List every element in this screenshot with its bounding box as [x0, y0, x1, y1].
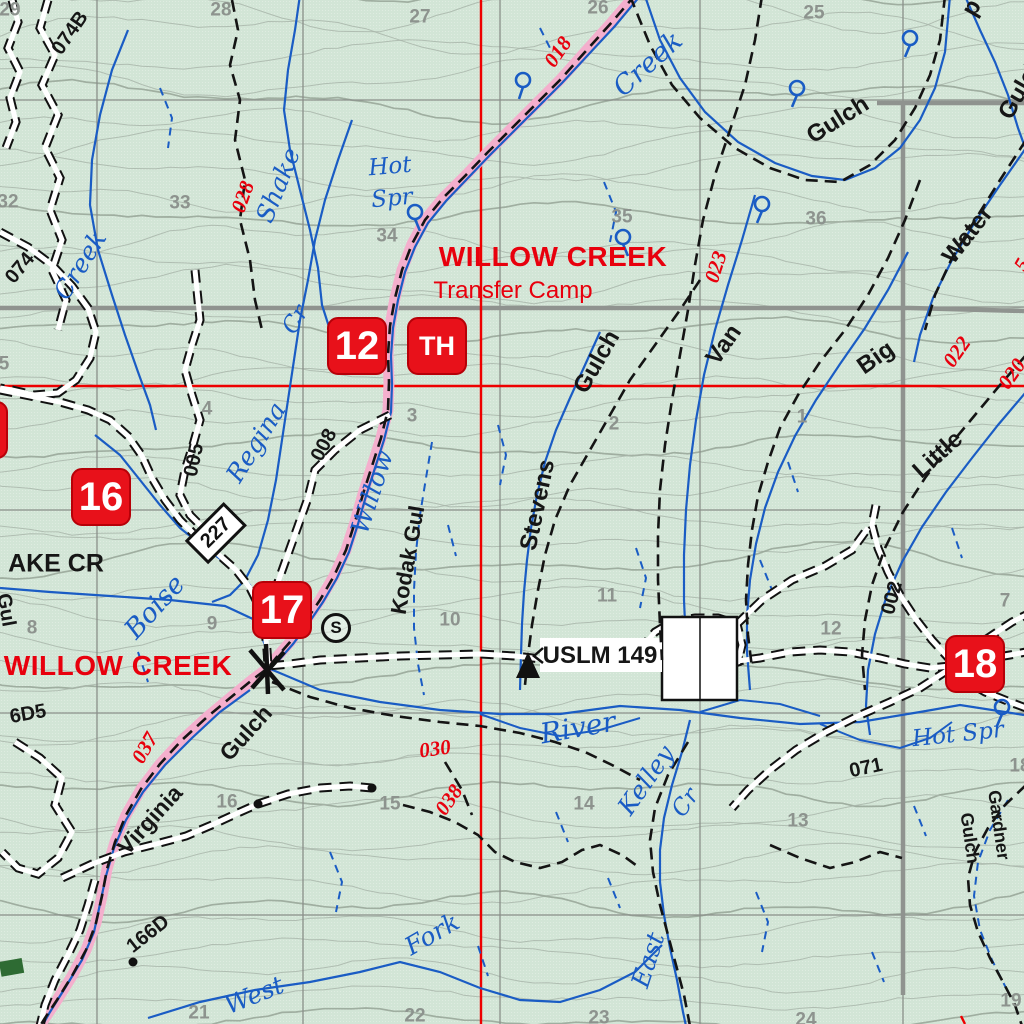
trailhead-badge-th[interactable]: TH — [407, 317, 467, 375]
label-willow-creek: WILLOW CREEK — [4, 652, 232, 680]
section-number: 29 — [0, 1, 21, 20]
route-badge-16-label: 16 — [79, 475, 124, 520]
section-number: 27 — [409, 8, 430, 27]
section-number: 21 — [188, 1004, 209, 1023]
route-badge-18-label: 18 — [953, 642, 998, 687]
section-number: 12 — [820, 620, 841, 639]
section-number: 23 — [588, 1009, 609, 1024]
label-ake-cr: AKE CR — [8, 552, 104, 577]
section-number: 1 — [797, 408, 808, 427]
section-number: 8 — [27, 619, 38, 638]
section-number: 24 — [795, 1011, 816, 1024]
label-willow-creek-camp: WILLOW CREEK — [439, 243, 667, 271]
route-badge-17[interactable]: 17 — [252, 581, 312, 639]
route-badge-12[interactable]: 12 — [327, 317, 387, 375]
section-number: 4 — [202, 400, 213, 419]
section-number: 16 — [216, 793, 237, 812]
section-number: 28 — [210, 1, 231, 20]
section-number: 3 — [407, 407, 418, 426]
route-badge-17-label: 17 — [260, 588, 305, 633]
route-badge-16[interactable]: 16 — [71, 468, 131, 526]
map-canvas — [0, 0, 1024, 1024]
label-uslm-149: USLM 149 — [543, 644, 658, 668]
section-number: 19 — [1000, 992, 1021, 1011]
trail-number-030: 030 — [418, 736, 452, 761]
label-transfer-camp: Transfer Camp — [433, 279, 592, 303]
section-number: 33 — [169, 194, 190, 213]
section-number: 36 — [805, 210, 826, 229]
section-number: 10 — [439, 611, 460, 630]
snow-area-symbol: S — [321, 613, 351, 643]
topo-map[interactable]: WILLOW CREEK Transfer Camp WILLOW CREEK … — [0, 0, 1024, 1024]
trailhead-badge-th-label: TH — [419, 331, 455, 362]
section-number: 32 — [0, 193, 19, 212]
section-number: 2 — [609, 415, 620, 434]
section-number: 14 — [573, 795, 594, 814]
section-number: 9 — [207, 615, 218, 634]
section-number: 25 — [803, 4, 824, 23]
route-badge-partial-left[interactable] — [0, 401, 8, 459]
section-number: 15 — [379, 795, 400, 814]
label-spr: Spr — [370, 186, 413, 213]
section-number: 26 — [587, 0, 608, 18]
label-hot: Hot — [368, 154, 413, 181]
section-number: 5 — [0, 355, 9, 374]
snow-area-symbol-letter: S — [330, 618, 341, 638]
section-number: 7 — [1000, 592, 1011, 611]
section-number: 11 — [597, 587, 617, 606]
section-number: 35 — [611, 208, 632, 227]
section-number: 13 — [787, 812, 808, 831]
route-badge-12-label: 12 — [335, 324, 380, 369]
section-number: 18 — [1009, 757, 1024, 776]
section-number: 34 — [376, 227, 397, 246]
section-number: 22 — [404, 1007, 425, 1024]
roads — [0, 0, 1024, 1024]
route-badge-18[interactable]: 18 — [945, 635, 1005, 693]
